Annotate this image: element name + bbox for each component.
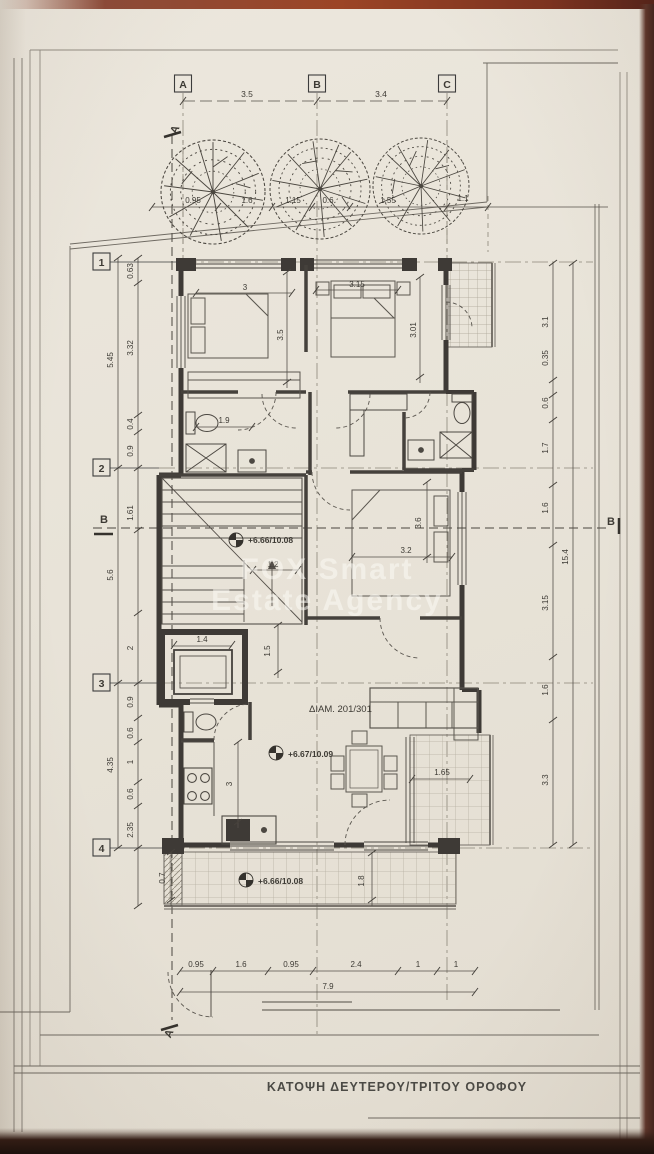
tree-icon — [250, 119, 391, 260]
grid-label-3: 3 — [99, 678, 105, 690]
toilet-icon — [184, 712, 193, 732]
dim-top-bc: 3.4 — [375, 89, 387, 99]
dim-tree-3: 1.15 — [285, 196, 301, 205]
grid-label-b: B — [313, 79, 321, 91]
section-marker-b-right: B — [607, 516, 615, 528]
dim-top-ab: 3.5 — [241, 89, 253, 99]
balcony-top-right — [448, 263, 492, 347]
dim-bed1-width: 3 — [243, 283, 248, 292]
dim-kitchen-depth: 3 — [225, 781, 234, 786]
dim-bottom-1: 0.95 — [188, 960, 204, 969]
bed — [352, 490, 450, 596]
dim-bottom-4: 2.4 — [350, 960, 362, 969]
drawing-caption: ΚΑΤΟΨΗ ΔΕΥΤΕΡΟΥ/ΤΡΙΤΟΥ ΟΡΟΦΟΥ — [267, 1080, 527, 1094]
dim-tree-4: 0.6 — [322, 196, 334, 205]
dim-balcony-right: 1.65 — [434, 768, 450, 777]
section-marker-b-left: B — [100, 514, 108, 526]
dim-bed2-width: 3.15 — [349, 280, 365, 289]
dim-stair-width: 1.2 — [267, 560, 279, 569]
dim-left-outer-2: 5.6 — [106, 569, 115, 581]
apartment-number-label: ΔΙΑΜ. 201/301 — [309, 704, 372, 715]
door-swings — [168, 302, 472, 1017]
balcony-bottom-right — [410, 735, 490, 845]
dim-left-2: 3.32 — [126, 340, 135, 356]
annotation-labels: +6.66/10.08 +6.67/10.09 +6.66/10.08 ΔΙΑΜ… — [248, 535, 372, 886]
dim-lift-width: 1.4 — [196, 635, 208, 644]
dim-bed3-depth: 3.6 — [414, 517, 423, 529]
scanned-floor-plan-page: A B C 1 2 3 4 A A B B 3.5 3.4 — [0, 0, 654, 1154]
level-label-stair: +6.66/10.08 — [248, 535, 293, 545]
dim-left-3: 0.4 — [126, 418, 135, 430]
dim-left-7: 0.9 — [126, 696, 135, 708]
dim-hall-depth: 1.5 — [263, 645, 272, 657]
dim-bottom-3: 0.95 — [283, 960, 299, 969]
dim-right-7: 1.6 — [541, 684, 550, 696]
dim-balcony-bottom-depth: 1.8 — [357, 875, 366, 887]
dim-left-11: 2.35 — [126, 822, 135, 838]
dim-right-5: 1.6 — [541, 502, 550, 514]
dim-left-outer-3: 4.35 — [106, 757, 115, 773]
level-marker-icon — [269, 746, 283, 760]
dim-left-6: 2 — [126, 645, 135, 650]
dim-right-6: 3.15 — [541, 595, 550, 611]
staircase — [162, 478, 302, 624]
grid-label-2: 2 — [99, 463, 105, 475]
sofa — [370, 688, 478, 728]
balcony-bottom — [164, 852, 456, 904]
level-label-balcony: +6.66/10.08 — [258, 876, 303, 886]
dim-bath1: 1.9 — [218, 416, 230, 425]
dim-right-3: 0.6 — [541, 397, 550, 409]
dim-planter-width: 0.7 — [158, 872, 167, 884]
dim-bottom-2: 1.6 — [235, 960, 247, 969]
grid-label-4: 4 — [99, 843, 105, 855]
dim-left-4: 0.9 — [126, 445, 135, 457]
dim-left-5: 1.61 — [126, 505, 135, 521]
dim-left-9: 1 — [126, 759, 135, 764]
dim-bottom-total: 7.9 — [322, 982, 334, 991]
dim-tree-offset: 1.1 — [457, 194, 469, 203]
dim-left-8: 0.6 — [126, 727, 135, 739]
dim-left-1: 0.63 — [126, 263, 135, 279]
dim-bed1-depth: 3.5 — [276, 329, 285, 341]
wardrobe — [350, 394, 407, 456]
furniture — [188, 281, 478, 807]
tree-icon — [161, 140, 265, 244]
toilet-icon — [452, 394, 472, 402]
dim-tree-5: 1.55 — [380, 196, 396, 205]
dim-tree-2: 1.6 — [241, 196, 253, 205]
dim-right-total: 15.4 — [561, 549, 570, 565]
kitchen — [181, 742, 276, 844]
dim-bottom-6: 1 — [454, 960, 459, 969]
floor-plan-drawing: A B C 1 2 3 4 A A B B 3.5 3.4 — [0, 0, 654, 1154]
bathroom-fixtures — [184, 394, 472, 732]
dim-bed3-width: 3.2 — [400, 546, 412, 555]
dim-left-10: 0.6 — [126, 788, 135, 800]
grid-label-a: A — [179, 79, 187, 91]
dim-right-8: 3.3 — [541, 774, 550, 786]
dining-table — [346, 746, 382, 792]
dim-left-outer-1: 5.45 — [106, 352, 115, 368]
dim-bottom-5: 1 — [416, 960, 421, 969]
trees — [161, 119, 487, 260]
grid-label-c: C — [443, 79, 451, 91]
entrance-steps — [211, 970, 560, 1017]
dim-bed2-depth: 3.01 — [409, 322, 418, 338]
dim-right-4: 1.7 — [541, 442, 550, 454]
level-label-living: +6.67/10.09 — [288, 749, 333, 759]
dim-tree-1: 0.95 — [185, 196, 201, 205]
grid-label-1: 1 — [99, 257, 105, 269]
level-marker-icon — [229, 533, 243, 547]
dim-right-2: 0.35 — [541, 350, 550, 366]
dim-right-1: 3.1 — [541, 316, 550, 328]
tree-icon — [355, 120, 486, 251]
grid-bubbles — [93, 75, 456, 856]
